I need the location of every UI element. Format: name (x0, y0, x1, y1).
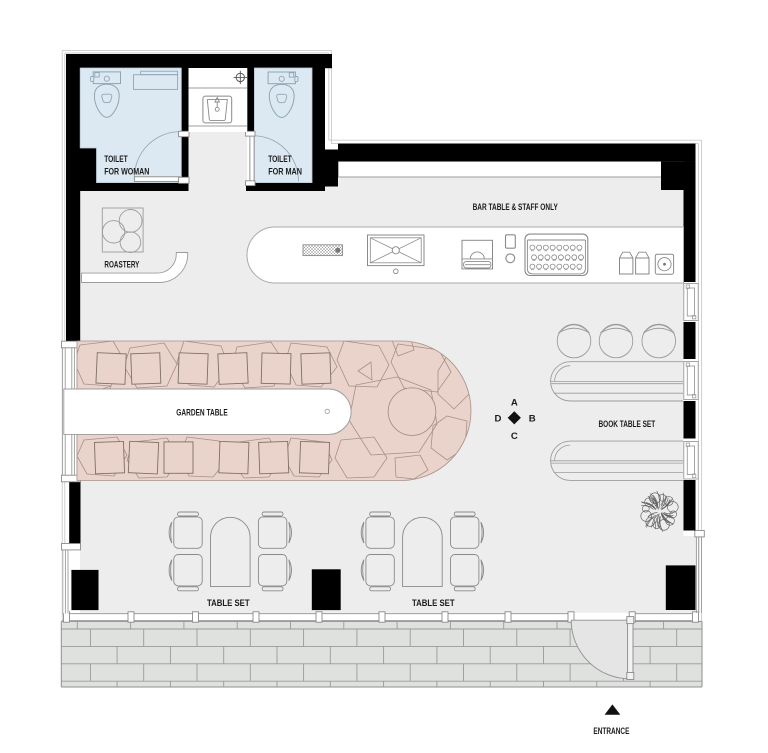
svg-text:TABLE SET: TABLE SET (207, 598, 250, 608)
svg-text:ENTRANCE: ENTRANCE (593, 725, 629, 736)
svg-text:FOR MAN: FOR MAN (268, 166, 302, 177)
svg-text:BOOK TABLE SET: BOOK TABLE SET (599, 419, 656, 429)
svg-text:BAR TABLE & STAFF ONLY: BAR TABLE & STAFF ONLY (473, 202, 558, 212)
svg-text:TOILET: TOILET (104, 153, 128, 164)
svg-text:FOR WOMAN: FOR WOMAN (104, 166, 149, 177)
svg-text:D: D (495, 413, 502, 424)
svg-text:A: A (511, 398, 518, 409)
svg-text:GARDEN TABLE: GARDEN TABLE (176, 407, 228, 417)
svg-text:TABLE SET: TABLE SET (412, 598, 455, 608)
svg-text:TOILET: TOILET (268, 153, 292, 164)
svg-text:B: B (529, 413, 536, 424)
svg-text:ROASTERY: ROASTERY (104, 260, 139, 270)
svg-text:C: C (511, 431, 518, 442)
